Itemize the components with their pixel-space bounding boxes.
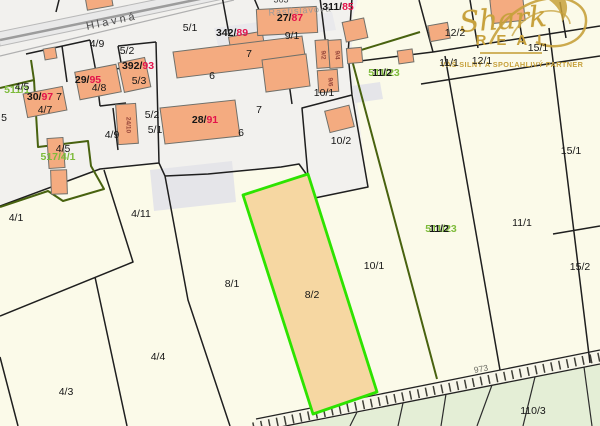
cadastral-map: Hlavná Rastislavova 363 392/93 342/89 31… — [0, 0, 600, 426]
parcel-label-5-3: 5/3 — [132, 76, 147, 87]
parcel-label-12-1: 12/1 — [472, 56, 492, 67]
parcel-label-5-2a: 5/2 — [120, 46, 135, 57]
parcel-label-4-1: 4/1 — [9, 213, 24, 224]
parcel-label-11-1a: 11/1 — [439, 58, 459, 69]
parcel-label-10-2: 10/2 — [331, 136, 351, 147]
parcel-label-8-2: 8/2 — [305, 290, 320, 301]
parcel-label-4-9a: 4/9 — [90, 39, 105, 50]
parcel-label-4-7: 4/7 — [38, 105, 53, 116]
parcel-label-5-1b: 5/1 — [148, 125, 163, 136]
parcel-label-4-5: 4/5 — [15, 82, 30, 93]
building-label-28-91: 28/91 — [192, 115, 218, 126]
parcel-label-6b: 6 — [238, 128, 244, 139]
parcel-label-5-2b: 5/2 — [145, 110, 160, 121]
building-label-7: 7 — [56, 92, 62, 103]
building-label-24-10: 24/10 — [124, 117, 131, 133]
parcel-label-15-1b: 15/1 — [561, 146, 581, 157]
parcel-label-4-11: 4/11 — [131, 209, 151, 220]
parcel-label-5: 5 — [1, 113, 7, 124]
parcel-label-4-9b: 4/9 — [105, 130, 120, 141]
parcel-label-8-1: 8/1 — [225, 279, 240, 290]
building-label-9-4: 9/4 — [333, 50, 340, 59]
parcel-label-15-2: 15/2 — [570, 262, 590, 273]
parcel-label-7b: 7 — [256, 105, 262, 116]
building-label-392-93: 392/93 — [122, 61, 154, 72]
parcel-label-15-1a: 15/1 — [528, 43, 548, 54]
e-parcel-label-517-4-1: 517/4/1 — [40, 152, 75, 163]
house-number-363: 363 — [273, 0, 288, 5]
parcel-label-4-3: 4/3 — [59, 387, 74, 398]
parcel-label-4-4: 4/4 — [151, 352, 166, 363]
building-label-311-85: 311/85 — [322, 2, 354, 13]
parcel-label-11-1b: 11/1 — [512, 218, 532, 229]
parcel-label-6a: 6 — [209, 71, 215, 82]
parcel-label-11-2b: 11/2 — [429, 224, 449, 235]
parcel-label-5-1a: 5/1 — [183, 23, 198, 34]
parcel-label-110-3: 110/3 — [520, 406, 546, 417]
parcel-label-12-2: 12/2 — [445, 28, 465, 39]
building-label-27-87: 27/87 — [277, 13, 303, 24]
parcel-label-9-1: 9/1 — [285, 31, 300, 42]
parcel-label-10-1a: 10/1 — [314, 88, 334, 99]
parcel-label-10-1b: 10/1 — [364, 261, 384, 272]
building-label-9-6: 9/6 — [326, 77, 333, 86]
parcel-label-4-8: 4/8 — [92, 83, 107, 94]
map-canvas — [0, 0, 600, 426]
building-label-9-2: 9/2 — [319, 50, 326, 59]
building-label-342-89: 342/89 — [216, 28, 248, 39]
parcel-label-7a: 7 — [246, 49, 252, 60]
building-label-30-97: 30/97 — [27, 92, 53, 103]
parcel-label-11-2a: 11/2 — [372, 68, 392, 79]
